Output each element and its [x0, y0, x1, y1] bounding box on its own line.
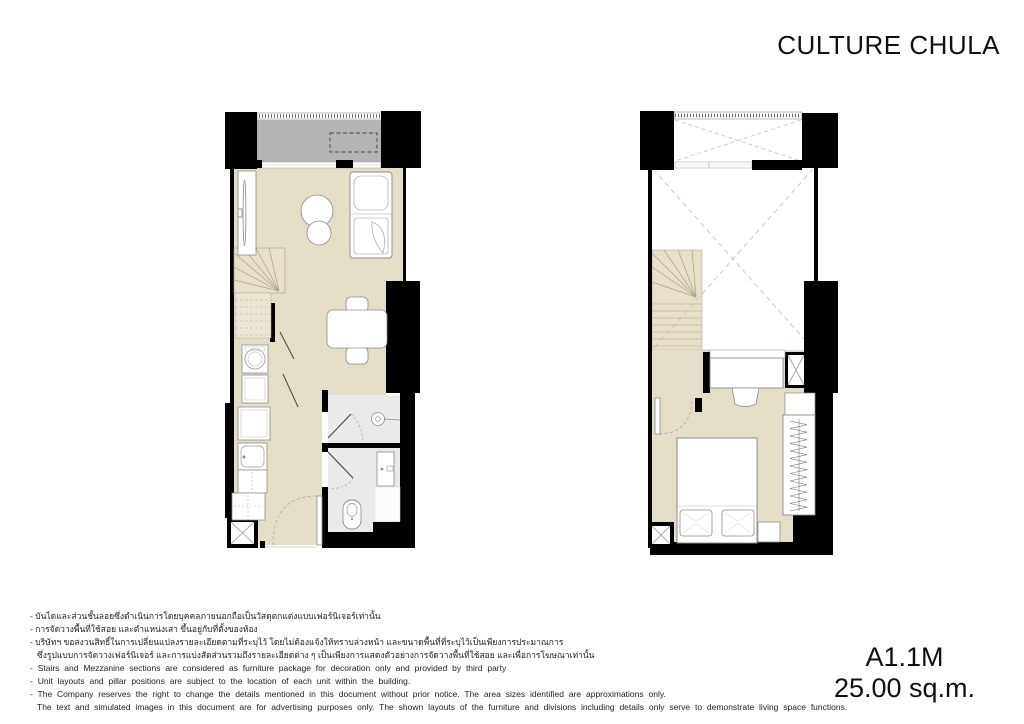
bed [677, 438, 757, 543]
unit-info: A1.1M 25.00 sq.m. [807, 642, 1002, 704]
kitchen [232, 407, 270, 520]
disclaimer-line: - บันไดและส่วนชั้นลอยซึ่งดำเนินการโดยบุค… [30, 610, 847, 623]
washing-machine [242, 345, 268, 373]
floor-plan-sheet: CULTURE CHULA [0, 0, 1024, 724]
balcony [256, 120, 390, 168]
disclaimer-line: - Unit layouts and pillar positions are … [30, 675, 847, 688]
disclaimer-line: - การจัดวางพื้นที่ใช้สอย และตำแหน่งเสา ข… [30, 623, 847, 636]
sofa [350, 172, 392, 258]
disclaimer-line: ซึ่งรูปแบบการจัดวางเฟอร์นิเจอร์ และการแบ… [30, 649, 847, 662]
unit-code: A1.1M [807, 642, 1002, 673]
wardrobe [783, 415, 815, 515]
brand-title: CULTURE CHULA [777, 30, 1000, 61]
mezzanine-floor-plan [632, 107, 842, 565]
kitchen-sink [238, 443, 267, 470]
lower-floor-plan [213, 107, 429, 565]
storage-box [242, 375, 268, 403]
service-shaft [231, 522, 254, 544]
mezzanine-railing [702, 350, 785, 358]
unit-area: 25.00 sq.m. [807, 673, 1002, 704]
disclaimer-line: - บริษัทฯ ขอสงวนสิทธิ์ในการเปลี่ยนแปลงรา… [30, 636, 847, 649]
disclaimer-line: - Stairs and Mezzanine sections are cons… [30, 662, 847, 675]
desk-chair [732, 388, 759, 407]
disclaimer-line: - The Company reserves the right to chan… [30, 688, 847, 701]
disclaimer-line: The text and simulated images in this do… [30, 701, 847, 714]
stairs-floor [652, 250, 702, 350]
vanity-sink [377, 452, 394, 486]
disclaimer: - บันไดและส่วนชั้นลอยซึ่งดำเนินการโดยบุค… [30, 610, 847, 714]
tv-cabinet [238, 171, 256, 255]
nightstand [758, 522, 780, 542]
toilet [343, 500, 361, 529]
cabinet-box [785, 393, 815, 415]
